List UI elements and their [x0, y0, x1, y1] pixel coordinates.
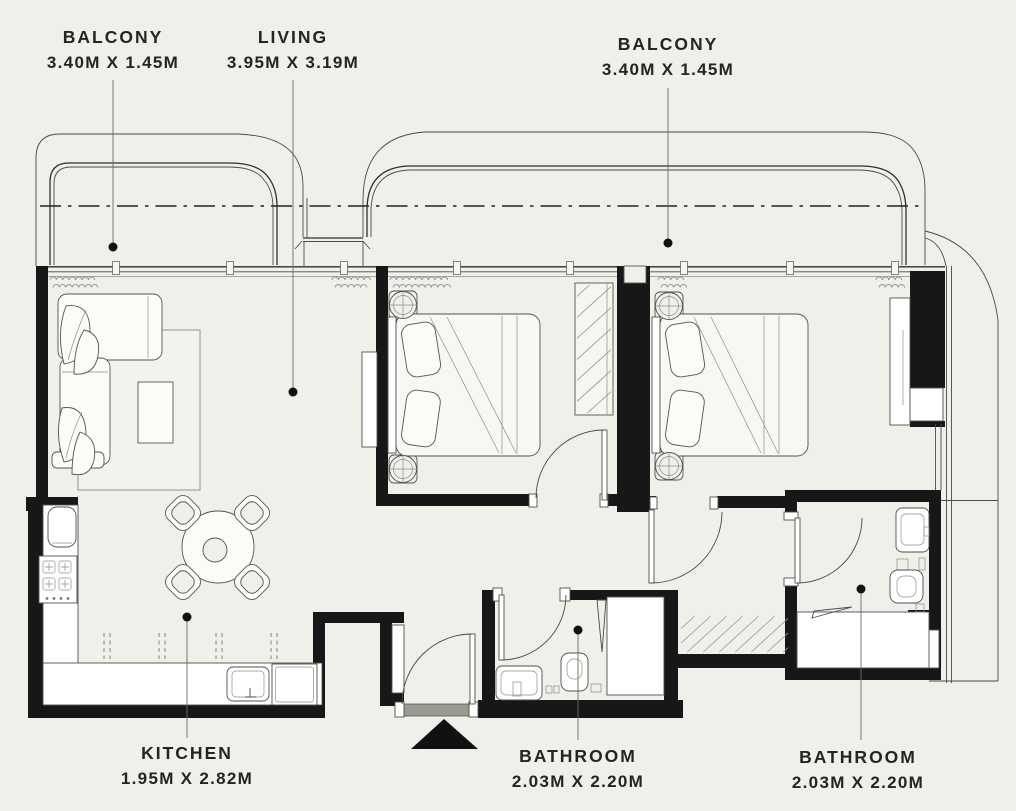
stove [39, 556, 77, 603]
room-name: BATHROOM [512, 743, 644, 769]
entrance-sill [404, 704, 470, 716]
room-name: BATHROOM [792, 744, 924, 770]
label-balcony-right: BALCONY 3.40M X 1.45M [602, 31, 734, 83]
bedroom-1-furniture [388, 283, 613, 483]
tv-console [362, 352, 377, 447]
entry-nook [392, 625, 404, 693]
room-name: KITCHEN [121, 740, 253, 766]
headboard [652, 317, 660, 453]
coffee-table [138, 382, 173, 443]
label-balcony-left: BALCONY 3.40M X 1.45M [47, 24, 179, 76]
floor-plan: BALCONY 3.40M X 1.45M LIVING 3.95M X 3.1… [0, 0, 1016, 811]
pillow [400, 389, 441, 448]
label-bathroom-right: BATHROOM 2.03M X 2.20M [792, 744, 924, 796]
shower-screen [597, 600, 606, 652]
table-lamp [655, 452, 683, 480]
shower [797, 612, 929, 668]
table-lamp [389, 291, 417, 319]
upper-cabinet-marks [104, 633, 277, 659]
dishwasher [272, 664, 317, 705]
pillow [664, 389, 705, 448]
bathroom-middle-door [493, 588, 570, 660]
vanity-sink [496, 666, 542, 700]
label-kitchen: KITCHEN 1.95M X 2.82M [121, 740, 253, 792]
bathroom-middle-fixtures [496, 597, 664, 700]
bedroom-2-furniture [652, 292, 943, 480]
room-dims: 3.40M X 1.45M [47, 50, 179, 76]
label-living: LIVING 3.95M X 3.19M [227, 24, 359, 76]
wardrobe-1 [575, 283, 613, 415]
fridge [48, 507, 76, 547]
room-dims: 1.95M X 2.82M [121, 766, 253, 792]
vanity-sink [896, 508, 929, 552]
entrance-door [395, 634, 478, 717]
corridor-floor-hatch [681, 616, 788, 652]
kitchen-sink [227, 667, 269, 701]
window-mullions [113, 262, 899, 275]
room-dims: 2.03M X 2.20M [792, 770, 924, 796]
room-dims: 3.40M X 1.45M [602, 57, 734, 83]
label-bathroom-middle: BATHROOM 2.03M X 2.20M [512, 743, 644, 795]
shaft-notch [624, 266, 646, 283]
room-dims: 2.03M X 2.20M [512, 769, 644, 795]
headboard [388, 317, 396, 453]
room-name: BALCONY [47, 24, 179, 50]
room-name: LIVING [227, 24, 359, 50]
shower [607, 597, 664, 695]
toilet [890, 570, 923, 603]
table-lamp [655, 292, 683, 320]
table-lamp [389, 455, 417, 483]
entrance-marker-icon [411, 719, 478, 749]
room-dims: 3.95M X 3.19M [227, 50, 359, 76]
toilet [561, 653, 588, 691]
bedroom-1-door [529, 430, 608, 507]
kitchen-furniture [39, 492, 322, 705]
curtains [50, 277, 905, 287]
bedroom-2-door [649, 497, 722, 583]
window-band [36, 262, 945, 277]
room-name: BALCONY [602, 31, 734, 57]
bathroom-right-door [784, 512, 862, 586]
floor-plan-svg [0, 0, 1016, 811]
living-room-furniture [52, 294, 377, 490]
